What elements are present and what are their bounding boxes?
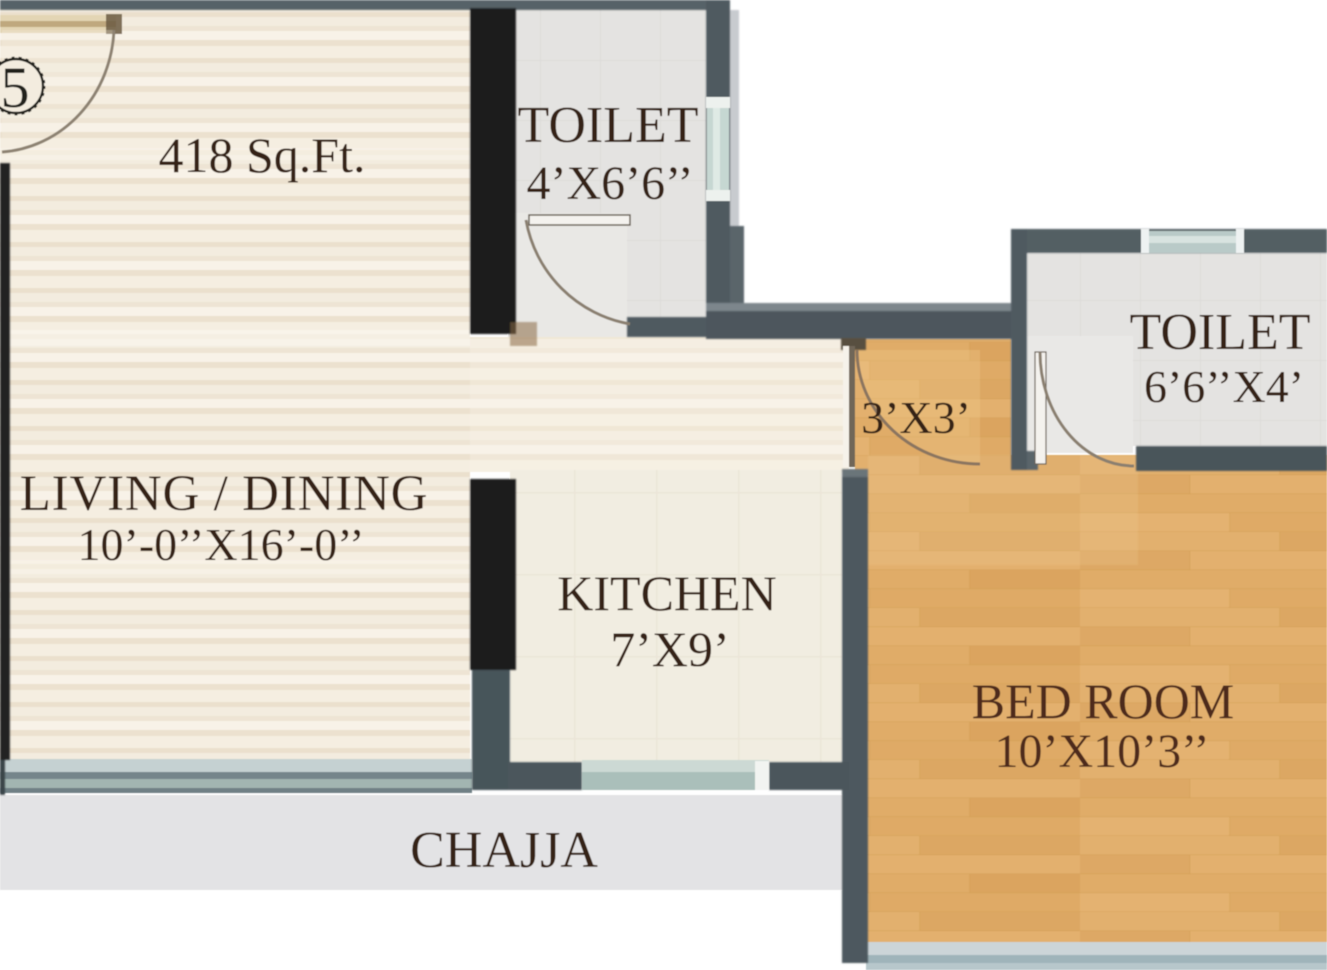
svg-text:CHAJJA: CHAJJA xyxy=(410,822,598,879)
svg-text:6’6’’X4’: 6’6’’X4’ xyxy=(1144,361,1304,412)
svg-text:3’X3’: 3’X3’ xyxy=(861,392,971,443)
svg-text:4’X6’6’’: 4’X6’6’’ xyxy=(526,157,693,210)
svg-text:KITCHEN: KITCHEN xyxy=(557,565,776,621)
svg-text:BED ROOM: BED ROOM xyxy=(972,673,1235,729)
svg-text:LIVING / DINING: LIVING / DINING xyxy=(20,466,429,522)
svg-text:TOILET: TOILET xyxy=(1130,304,1311,361)
svg-text:418 Sq.Ft.: 418 Sq.Ft. xyxy=(158,127,365,183)
svg-text:TOILET: TOILET xyxy=(518,97,699,154)
svg-text:10’-0’’X16’-0’’: 10’-0’’X16’-0’’ xyxy=(78,519,365,570)
svg-text:10’X10’3’’: 10’X10’3’’ xyxy=(994,725,1209,778)
svg-text:5: 5 xyxy=(1,55,30,120)
svg-text:7’X9’: 7’X9’ xyxy=(610,621,729,677)
